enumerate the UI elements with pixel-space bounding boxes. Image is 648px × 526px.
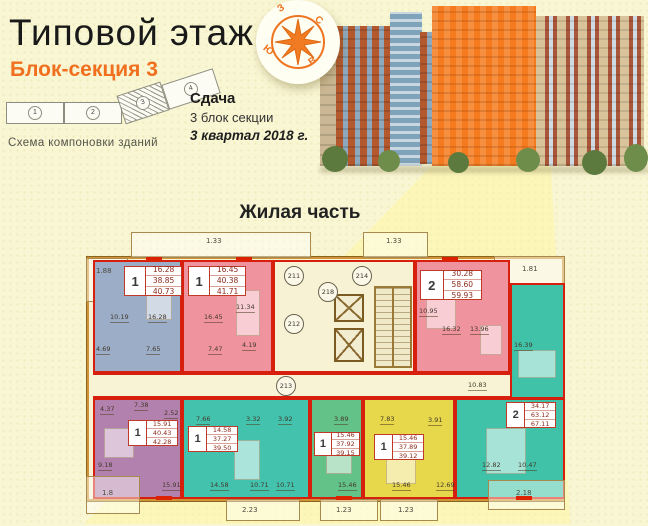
room-area: 3.92 [278,416,292,425]
dim-label: 1.23 [336,507,352,514]
room-area: 15.46 [392,482,411,491]
room-area: 15.46 [338,482,357,491]
scheme-block-2: 2 [64,102,122,124]
living-area: 15.91 [147,420,177,428]
room-area: 10.71 [250,482,269,491]
tree-icon [516,148,540,172]
delivery-line2: 3 квартал 2018 г. [190,128,308,143]
room-area: 11.34 [236,304,255,313]
scheme-block-2-number: 2 [86,106,100,120]
room-area: 4.37 [100,406,114,415]
apartment-area: 40.43 [147,428,177,437]
room-area: 10.95 [419,308,438,317]
room-area: 4.69 [96,346,110,355]
apartment-area: 37.89 [393,442,423,451]
dim-label: 2.23 [242,507,258,514]
delivery-line1: 3 блок секции [190,110,308,125]
stairs-icon [374,286,412,368]
apartment-type: 2 [507,403,525,427]
room-area: 7.47 [208,346,222,355]
apartment-type: 1 [315,433,332,455]
apartment-teal-corner-info: 2 34.17 63.12 67.11 [506,402,556,428]
building-highlighted-section [432,6,536,166]
balcony-top-2 [363,232,428,258]
room-area: 7.83 [380,416,394,425]
room-area: 14.58 [210,482,229,491]
brochure-page: { "header": { "title": "Типовой этаж", "… [0,0,648,526]
room-area: 16.45 [204,314,223,323]
plan-title: Жилая часть [160,202,440,224]
tree-icon [624,144,648,172]
living-area: 14.58 [207,426,237,434]
window-marker [236,257,252,261]
tree-icon [322,146,348,172]
living-area: 16.28 [146,265,181,275]
window-marker [146,257,162,261]
apartment-area: 63.12 [525,410,555,419]
room-area: 3.32 [246,416,260,425]
total-area: 39.12 [393,451,423,460]
total-area: 39.50 [207,443,237,452]
room-area: 16.28 [148,314,167,323]
dim-label: 1.33 [206,238,222,245]
room-area: 16.32 [442,326,461,335]
room-area: 10.83 [468,382,487,391]
total-area: 67.11 [525,419,555,428]
window-marker [442,257,458,261]
building-tower-right [536,16,644,166]
unit-214-badge: 214 [352,266,372,286]
dim-label: 1.81 [522,266,538,273]
apartment-area: 58.60 [444,279,481,290]
corridor-213-badge: 213 [276,376,296,396]
apartment-area: 37.27 [207,434,237,443]
tree-icon [378,150,400,172]
unit-218-badge: 218 [318,282,338,302]
room-area: 10.47 [518,462,537,471]
apartment-type: 1 [189,427,207,451]
room-area: 15.91 [162,482,181,491]
dim-label: 1.8 [102,490,113,497]
apartment-area: 40.38 [210,275,245,286]
room-area: 3.91 [428,417,442,426]
apartment-pink-1-info: 1 16.45 40.38 41.71 [188,266,246,296]
room-area: 3.89 [334,416,348,425]
apartment-type: 1 [375,435,393,459]
room-area: 7.38 [134,402,148,411]
apartment-type: 1 [129,421,147,445]
dim-label: 1.23 [398,507,414,514]
room-area: 7.66 [196,416,210,425]
total-area: 40.73 [146,286,181,297]
apartment-type: 1 [189,267,210,295]
furniture [518,350,556,378]
page-title: Типовой этаж [9,12,254,54]
total-area: 39.15 [332,448,359,457]
balcony-bottom-1 [226,499,300,521]
corridor [93,373,510,398]
compass: З С Ю В [256,0,340,84]
delivery-label: Сдача [190,90,308,107]
building-tower-brick-1 [336,26,392,166]
room-area: 16.39 [514,342,533,351]
scheme-block-1: 1 [6,102,64,124]
balcony-top-1 [131,232,311,258]
living-area: 15.46 [393,434,423,442]
scheme-caption: Схема компоновки зданий [8,137,158,149]
window-marker [156,496,172,500]
apartment-teal-bottom-info: 1 14.58 37.27 39.50 [188,426,238,452]
room-area: 2.52 [164,410,178,419]
apartment-green-info: 1 15.46 37.92 39.15 [314,432,360,456]
building-render [320,0,648,180]
apartment-area: 38.85 [146,275,181,286]
apartment-pink-2-info: 2 30.28 58.60 59.93 [420,270,482,300]
room-area: 13.96 [470,326,489,335]
living-area: 16.45 [210,265,245,275]
room-area: 10.19 [110,314,129,323]
apartment-blue-info: 1 16.28 38.85 40.73 [124,266,182,296]
apartment-area: 37.92 [332,439,359,448]
room-area: 9.18 [98,462,112,471]
scheme-block-1-number: 1 [28,106,42,120]
total-area: 41.71 [210,286,245,297]
living-area: 15.46 [332,431,359,439]
room-area: 10.71 [276,482,295,491]
floor-plan: 1.33 1.33 1.88 1.81 211 218 212 214 213 … [86,230,568,524]
dim-label: 1.88 [96,268,112,275]
building-tower-glass [390,12,422,166]
total-area: 59.93 [444,290,481,301]
room-area: 12.82 [482,462,501,471]
apartment-purple-info: 1 15.91 40.43 42.28 [128,420,178,446]
elevator-icon [334,328,364,362]
apartment-type: 1 [125,267,146,295]
elevator-icon [334,294,364,322]
room-area: 7.65 [146,346,160,355]
delivery-info: Сдача 3 блок секции 3 квартал 2018 г. [190,90,308,143]
room-area: 12.69 [436,482,455,491]
unit-212-badge: 212 [284,314,304,334]
compass-west-label: З [275,2,286,15]
tree-icon [582,150,607,175]
building-layout-scheme: 1 2 3 4 [6,76,220,134]
tree-icon [448,152,469,173]
apartment-type: 2 [421,271,444,299]
living-area: 30.28 [444,269,481,279]
total-area: 42.28 [147,437,177,446]
dim-label: 2.18 [516,490,532,497]
unit-211-badge: 211 [284,266,304,286]
apartment-yellow-info: 1 15.46 37.89 39.12 [374,434,424,460]
dim-label: 1.33 [386,238,402,245]
living-area: 34.17 [525,402,555,410]
window-marker [336,496,352,500]
room-area: 4.19 [242,342,256,351]
scheme-block-3-number: 3 [134,94,152,112]
